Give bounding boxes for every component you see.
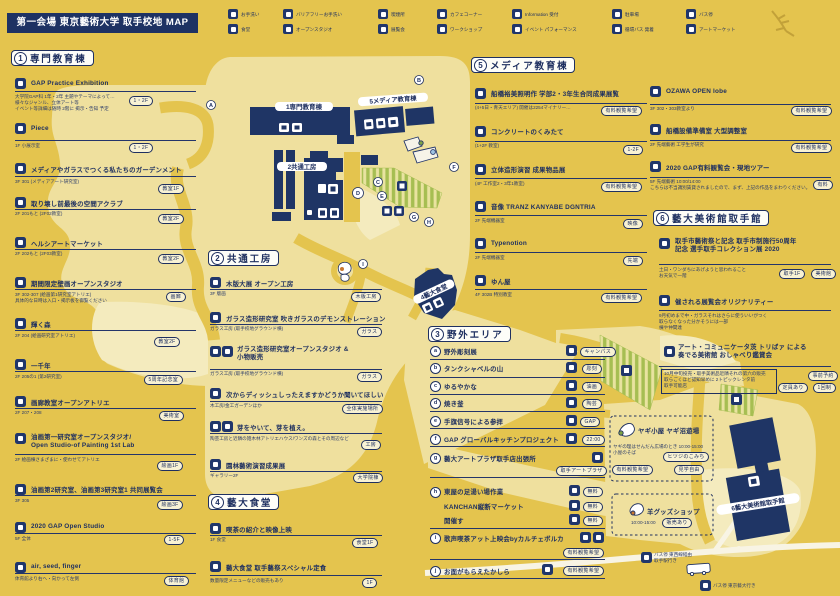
svg-text:H: H — [427, 220, 431, 226]
svg-text:B: B — [417, 78, 421, 84]
svg-text:E: E — [380, 194, 384, 200]
svg-text:2共通工房: 2共通工房 — [288, 162, 317, 171]
svg-text:G: G — [412, 215, 416, 221]
svg-text:C: C — [376, 180, 380, 186]
svg-text:D: D — [356, 191, 360, 197]
svg-text:A: A — [209, 103, 213, 109]
svg-text:1専門教育棟: 1専門教育棟 — [286, 102, 323, 111]
